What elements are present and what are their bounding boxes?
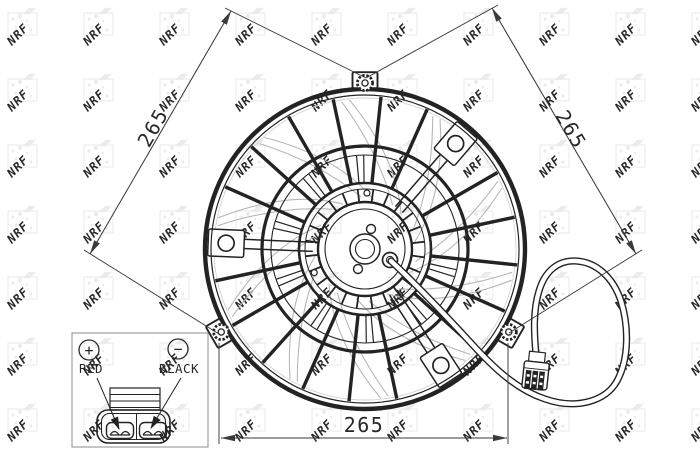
black-wire-label: BLACK — [159, 361, 199, 376]
dimension-label-right: 265 — [551, 106, 592, 153]
motor-hub — [318, 202, 412, 296]
svg-text:+: + — [84, 342, 93, 360]
svg-text:−: − — [173, 340, 182, 358]
dimension-annotations — [84, 5, 642, 444]
dimension-label-left: 265 — [132, 104, 173, 151]
minus-icon: − — [168, 339, 188, 359]
mounting-tabs — [206, 72, 525, 348]
plus-icon: + — [79, 340, 99, 360]
polarity-legend: + − RED BLACK — [72, 333, 208, 447]
red-wire-label: RED — [79, 361, 103, 376]
connector-pinout-diagram — [97, 378, 181, 443]
fan-technical-drawing: NRF 265 265 265 + − RED BLACK — [0, 0, 700, 460]
power-connector — [522, 351, 551, 391]
dimension-label-bottom: 265 — [344, 413, 385, 437]
